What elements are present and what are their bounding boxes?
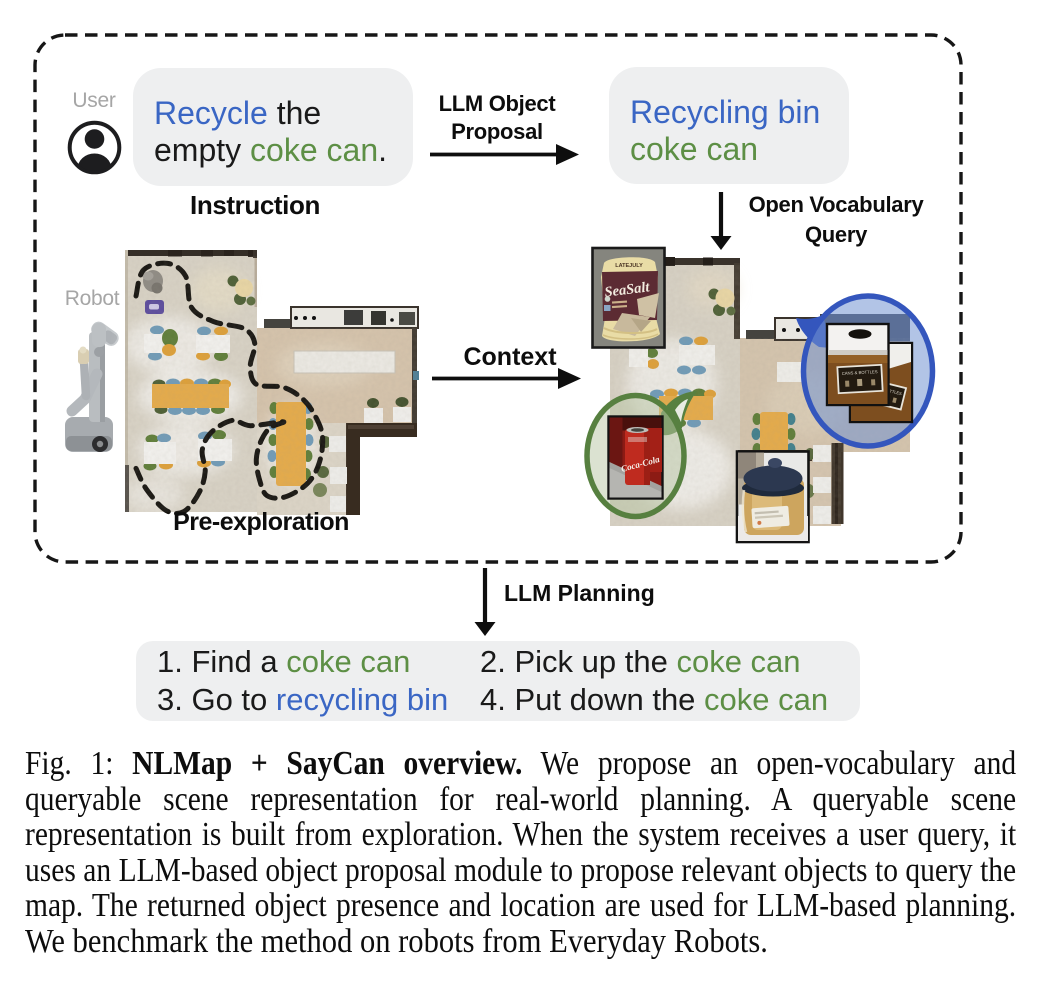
svg-text:LATEJULY: LATEJULY <box>615 263 643 269</box>
